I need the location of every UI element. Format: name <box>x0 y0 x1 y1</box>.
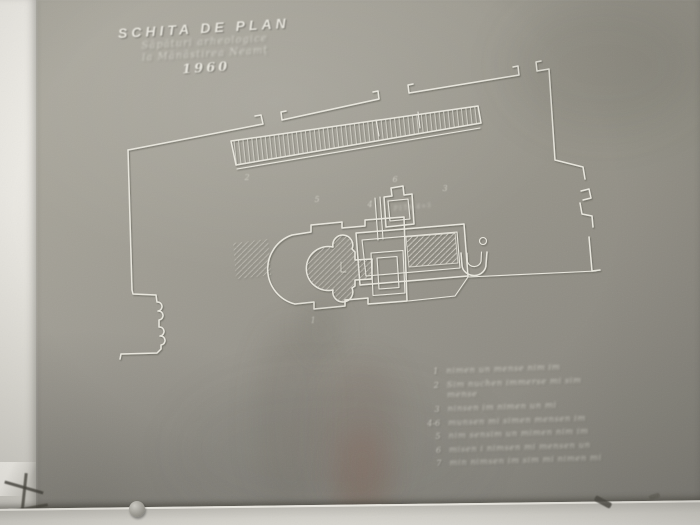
legend-text: ninsen im nimen un mi <box>448 401 557 415</box>
narthex-inner <box>377 257 399 290</box>
east-wall-low <box>589 237 600 271</box>
west-wall <box>120 150 165 359</box>
legend-number: 4-6 <box>424 418 440 428</box>
plan-marker: 4 <box>366 200 372 209</box>
plan-marker: 3 <box>442 184 447 193</box>
photo-of-plan-panel: 1 2 3 4 5 6 P1TA 4+5 SCHITA DE PLAN Săpă… <box>0 0 700 525</box>
legend-number: 5 <box>424 432 440 442</box>
hatched-area-west <box>233 239 271 279</box>
legend-text: nim sensim un mimen nim im <box>448 427 588 443</box>
legend-number: 6 <box>425 445 441 455</box>
annex-label: P1TA 4+5 <box>392 202 432 212</box>
plan-marker: 5 <box>314 195 319 204</box>
legend: 1 nimen un mense nim im 2 Sim nuchen imm… <box>422 361 616 474</box>
title-block: SCHITA DE PLAN Săpături arheologice la M… <box>116 15 293 82</box>
legend-text: min nimsen im sim mi nimen mi <box>449 454 602 470</box>
legend-number: 2 <box>423 380 439 390</box>
legend-text: munsen mi simen mensen im <box>448 413 586 428</box>
legend-number: 1 <box>422 367 438 377</box>
plan-marker: 6 <box>392 175 397 184</box>
u-feature-inner <box>467 252 482 267</box>
south-enclosure-line <box>468 271 596 277</box>
shelf-highlight <box>0 462 36 496</box>
circle-mark <box>480 238 487 245</box>
north-wall-2 <box>281 91 379 120</box>
legend-number: 7 <box>425 459 441 469</box>
north-east-corner <box>536 61 585 179</box>
east-wall-hook <box>581 189 591 200</box>
east-wall-mid <box>580 203 593 227</box>
legend-number: 3 <box>424 405 440 415</box>
plan-marker: 2 <box>243 173 249 182</box>
wall-strip <box>0 0 36 525</box>
legend-row: 2 Sim nuchen immerse mi sim mense <box>423 374 614 402</box>
north-wall-3 <box>408 66 519 93</box>
annex-hatched-rect-fill <box>406 233 458 267</box>
plan-marker: 1 <box>310 316 315 325</box>
mounting-bolt <box>129 501 145 517</box>
u-feature-outer <box>461 252 487 276</box>
legend-text: Sim nuchen immerse mi sim mense <box>447 374 614 401</box>
